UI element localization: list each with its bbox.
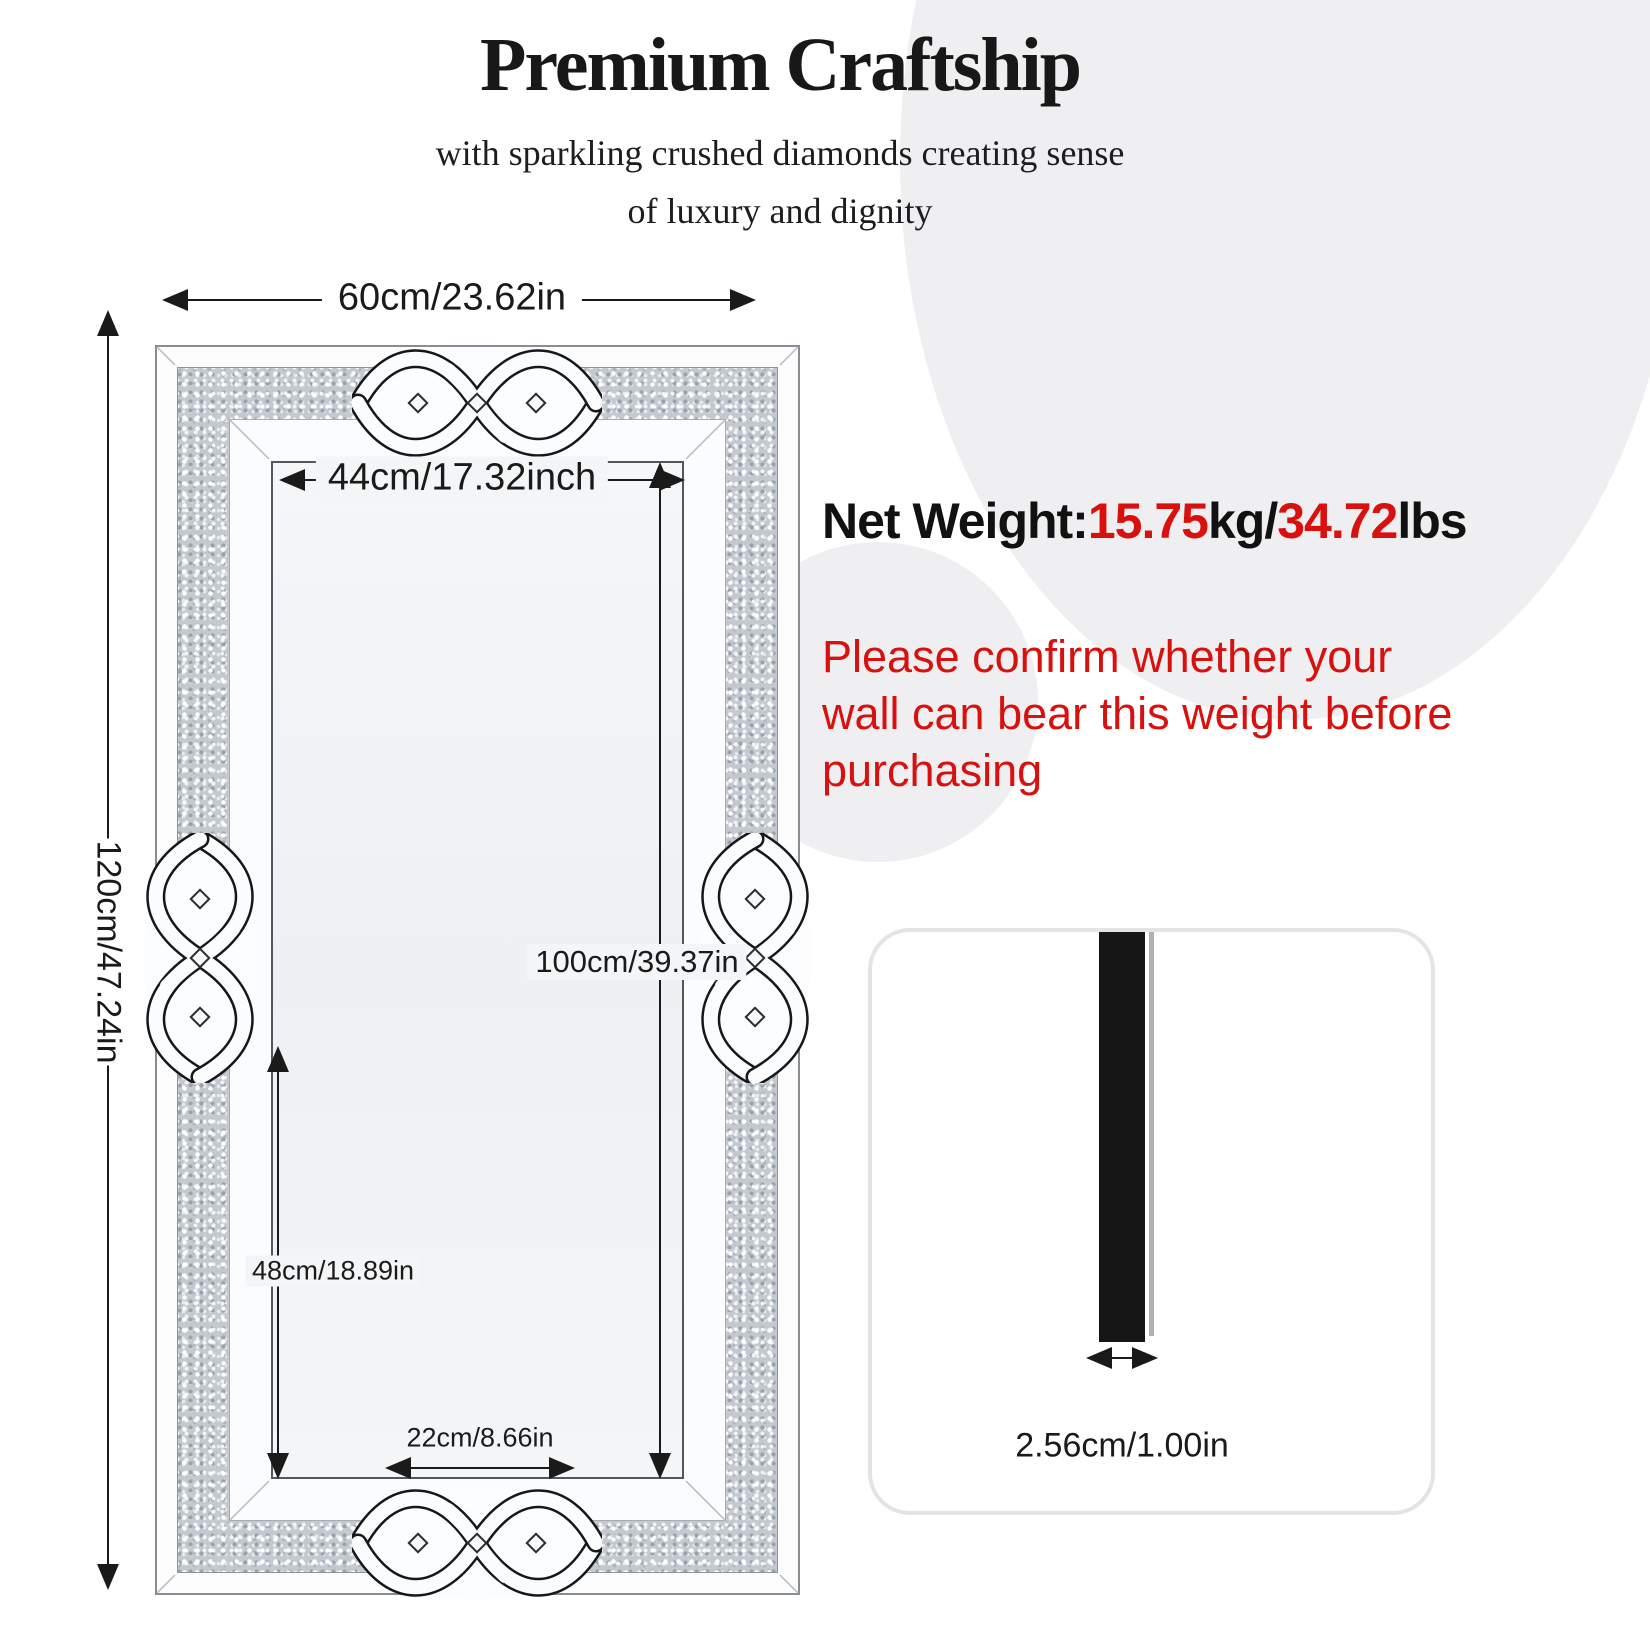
- warning-line-2: wall can bear this weight before: [822, 685, 1452, 742]
- net-weight-lbs-unit: lbs: [1397, 493, 1466, 549]
- subtitle-line-1: with sparkling crushed diamonds creating…: [436, 132, 1125, 174]
- net-weight-lbs-value: 34.72: [1277, 493, 1397, 549]
- knot-ornament-bottom: [352, 1478, 602, 1608]
- side-profile-bar: [1099, 932, 1145, 1342]
- net-weight-kg-value: 15.75: [1088, 493, 1208, 549]
- product-infographic: Premium Craftship with sparkling crushed…: [0, 0, 1650, 1650]
- warning-line-1: Please confirm whether your: [822, 628, 1452, 685]
- net-weight-kg-unit: kg/: [1208, 493, 1277, 549]
- net-weight-label: Net Weight:: [822, 493, 1088, 549]
- dimension-label-inner-width: 44cm/17.32inch: [316, 457, 608, 500]
- dimension-label-bottom-width: 22cm/8.66in: [406, 1423, 553, 1454]
- net-weight-text: Net Weight:15.75kg/34.72lbs: [822, 492, 1467, 550]
- dimension-label-inner-height: 100cm/39.37in: [527, 944, 746, 980]
- warning-line-3: purchasing: [822, 742, 1452, 799]
- page-title: Premium Craftship: [480, 22, 1080, 109]
- knot-ornament-left: [135, 833, 265, 1083]
- knot-ornament-top: [352, 338, 602, 468]
- dimension-label-overall-width: 60cm/23.62in: [322, 277, 582, 320]
- dimension-label-partial-height: 48cm/18.89in: [246, 1256, 420, 1287]
- dimension-label-overall-height: 120cm/47.24in: [73, 838, 144, 1065]
- dimension-label-thickness: 2.56cm/1.00in: [1015, 1427, 1229, 1466]
- subtitle-line-2: of luxury and dignity: [628, 190, 933, 232]
- weight-warning-text: Please confirm whether your wall can bea…: [822, 628, 1452, 799]
